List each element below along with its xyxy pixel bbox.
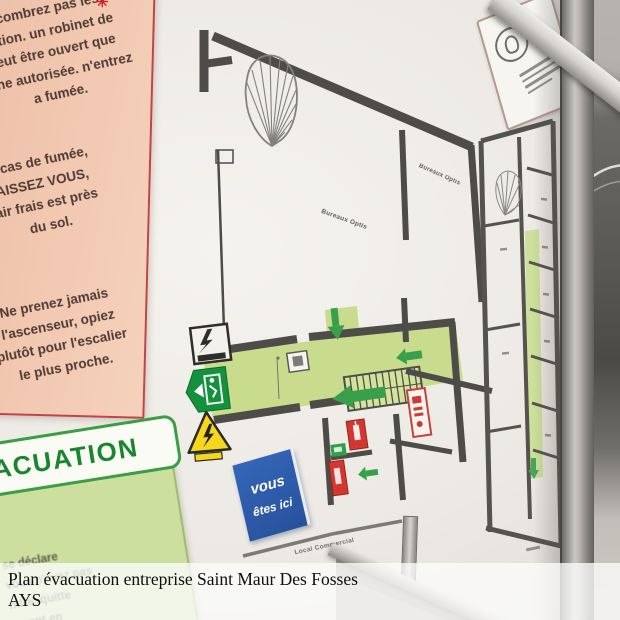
board-shadow — [533, 0, 562, 620]
you-are-here-line2: êtes ici — [252, 495, 294, 520]
caption-subtitle: AYS — [8, 590, 620, 611]
evac-arrow-small-icon — [357, 465, 379, 482]
you-are-here-line1: vous — [249, 472, 287, 498]
caption-title: Plan évacuation entreprise Saint Maur De… — [8, 569, 620, 590]
frame-right-rail — [560, 0, 594, 620]
fire-extinguisher-sign-icon — [346, 419, 368, 450]
spiral-staircase-inset-icon — [496, 171, 521, 215]
evacuation-route — [203, 229, 543, 479]
evacuation-plan-photo: Bureaux Optis Bureaux Optis Local Commer… — [0, 0, 620, 620]
corridor-pictogram-sign-icon — [287, 351, 309, 373]
fire-equipment-sign-icon — [407, 388, 431, 437]
caption-bar: Plan évacuation entreprise Saint Maur De… — [0, 563, 620, 620]
exit-sign-icon — [184, 367, 231, 414]
electrical-panel-sign-icon — [190, 324, 231, 364]
red-asterisk-mark: ✳ — [96, 0, 109, 11]
green-exit-small-sign-icon — [330, 443, 347, 457]
